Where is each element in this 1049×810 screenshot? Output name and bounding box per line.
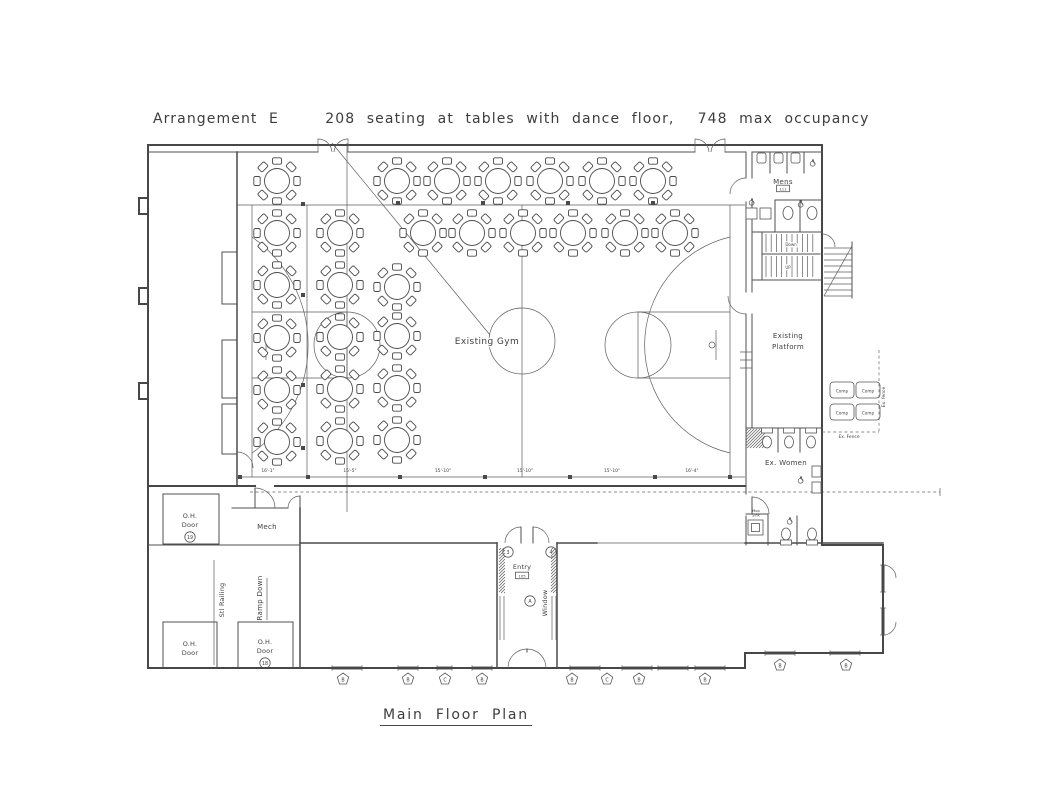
comp-unit-label: Comp (836, 410, 849, 415)
banquet-table (254, 315, 300, 361)
chair (257, 318, 268, 329)
table-circle (435, 169, 460, 194)
chair (503, 242, 514, 253)
chair (406, 161, 417, 172)
hatch-line (551, 568, 557, 574)
chair (286, 347, 297, 358)
table-circle (411, 221, 436, 246)
chair (400, 229, 406, 238)
chair (393, 365, 402, 371)
chair (294, 438, 300, 447)
chair (357, 229, 363, 238)
chair (377, 316, 388, 327)
table-circle (486, 169, 511, 194)
grid-marker (396, 201, 400, 205)
chair (582, 161, 593, 172)
banquet-table (424, 158, 470, 204)
chair (273, 419, 282, 425)
chair (611, 190, 622, 201)
wheelchair-wheel (787, 519, 792, 524)
comp-unit-label: Comp (862, 410, 875, 415)
room-number-text: 111 (779, 187, 787, 192)
hatch-line (499, 556, 505, 562)
chair (257, 190, 268, 201)
chair (349, 317, 360, 328)
table-circle (613, 221, 638, 246)
floor-plan-drawing: 16'-1"15'-5"15'-10"15'-10"15'-10"16'-4" … (0, 0, 1049, 810)
chair (605, 213, 616, 224)
wheelchair-icon (798, 476, 803, 483)
room-number-text: 105 (518, 574, 526, 579)
chair (320, 421, 331, 432)
window-openings (332, 565, 886, 671)
chair (273, 158, 282, 164)
chair (273, 302, 282, 308)
chair (320, 398, 331, 409)
chair (320, 317, 331, 328)
window-tag: B (566, 673, 577, 684)
dimension-tick (398, 475, 402, 479)
label-ex-fence-horizontal: Ex. Fence (838, 434, 859, 440)
chair (621, 210, 630, 216)
chair (374, 177, 380, 186)
door-tag-number: 3 (506, 550, 509, 556)
chair (602, 229, 608, 238)
chair (507, 190, 518, 201)
banquet-table (374, 365, 420, 411)
table-circle (538, 169, 563, 194)
table-circle (265, 326, 290, 351)
chair (530, 161, 541, 172)
chair (468, 250, 477, 256)
chair (377, 420, 388, 431)
chair (684, 242, 695, 253)
chair (336, 406, 345, 412)
window-tag-letter: B (703, 677, 706, 683)
window-tag: B (840, 659, 851, 670)
chair (406, 397, 417, 408)
chair (582, 242, 593, 253)
chair (317, 385, 323, 394)
chair (377, 449, 388, 460)
banquet-table (254, 419, 300, 465)
chair (349, 242, 360, 253)
chair (286, 161, 297, 172)
chair (257, 213, 268, 224)
table-seating-area (254, 158, 698, 465)
chair (655, 213, 666, 224)
chair (286, 265, 297, 276)
banquet-table (254, 210, 300, 256)
stairway (752, 232, 852, 298)
chair (393, 304, 402, 310)
chair (254, 281, 260, 290)
chair (406, 267, 417, 278)
table-circle (590, 169, 615, 194)
hatch-line (499, 565, 505, 571)
chair (294, 386, 300, 395)
chair (569, 250, 578, 256)
table-circle (265, 273, 290, 298)
banquet-table (317, 418, 363, 464)
exterior-walls (139, 145, 883, 668)
hatch-line (551, 571, 557, 577)
table-circle (328, 273, 353, 298)
table-circle (385, 376, 410, 401)
table-circle (641, 169, 666, 194)
banquet-table (527, 158, 573, 204)
hatch-line (551, 562, 557, 568)
chair (393, 353, 402, 359)
chair (605, 242, 616, 253)
dimension-label: 16'-4" (685, 468, 698, 474)
wheelchair-wheel (810, 161, 815, 166)
label-mech: Mech (257, 523, 277, 531)
chair (273, 198, 282, 204)
label-ex-women: Ex. Women (765, 459, 807, 467)
chair (440, 229, 446, 238)
comp-unit: Comp (830, 404, 854, 420)
chair (478, 161, 489, 172)
hatch-line (551, 565, 557, 571)
chair (611, 161, 622, 172)
hatch-line (499, 580, 505, 586)
table-circle (265, 378, 290, 403)
chair (357, 281, 363, 290)
chair (320, 450, 331, 461)
chair (424, 177, 430, 186)
chair (540, 229, 546, 238)
chair (320, 242, 331, 253)
banquet-table (602, 210, 648, 256)
stair-treads (766, 234, 813, 277)
chair (273, 210, 282, 216)
chair (349, 294, 360, 305)
banquet-table (500, 210, 546, 256)
comp-unit: Comp (830, 382, 854, 398)
chair (652, 229, 658, 238)
wheelchair-icon (810, 159, 815, 166)
dimension-label: 15'-10" (517, 468, 533, 474)
table-circle (385, 324, 410, 349)
chair (634, 213, 645, 224)
chair (377, 368, 388, 379)
room-number: 111 (777, 185, 790, 192)
window-tag-letter: B (844, 663, 847, 669)
chair (503, 213, 514, 224)
chair (254, 438, 260, 447)
chair (406, 420, 417, 431)
banquet-table (550, 210, 596, 256)
chair (317, 281, 323, 290)
chair (582, 213, 593, 224)
chair (621, 250, 630, 256)
banquet-table (449, 210, 495, 256)
comp-unit-label: Comp (836, 388, 849, 393)
chair (320, 369, 331, 380)
hatch-line (499, 548, 501, 550)
chair (662, 161, 673, 172)
chair (336, 210, 345, 216)
chair (317, 229, 323, 238)
window-tag-letter: B (778, 663, 781, 669)
hatch-line (499, 574, 505, 580)
chair (598, 198, 607, 204)
label-entry: Entry (513, 563, 531, 571)
plan-caption: Main Floor Plan (380, 707, 532, 726)
label-mop-2: Sink (752, 514, 761, 518)
door-tag: 3 (503, 547, 513, 557)
chair (642, 229, 648, 238)
chair (257, 265, 268, 276)
chair (567, 177, 573, 186)
window-tag: B (337, 673, 348, 684)
banquet-table (254, 262, 300, 308)
chair (414, 436, 420, 445)
dimension-tick (306, 475, 310, 479)
banquet-table (317, 262, 363, 308)
chair (349, 265, 360, 276)
chair (684, 213, 695, 224)
window-tag-letter: B (570, 677, 573, 683)
dimension-tick (568, 475, 572, 479)
chair (414, 332, 420, 341)
chair (452, 213, 463, 224)
table-circle (460, 221, 485, 246)
chair (464, 177, 470, 186)
chair (530, 190, 541, 201)
comp-unit-label: Comp (862, 388, 875, 393)
chair (273, 407, 282, 413)
table-circle (265, 169, 290, 194)
chair (432, 213, 443, 224)
chair (456, 190, 467, 201)
label-oh-door-sw-2: Door (182, 649, 199, 657)
chair (320, 213, 331, 224)
table-circle (561, 221, 586, 246)
accessible-icons (749, 159, 815, 524)
table-circle (328, 221, 353, 246)
chair (406, 190, 417, 201)
banquet-table (374, 158, 420, 204)
chair (414, 283, 420, 292)
chair (443, 198, 452, 204)
door-tag: 18 (260, 658, 270, 668)
chair (414, 384, 420, 393)
door-tags: 191834A (185, 532, 556, 668)
window-tag: B (476, 673, 487, 684)
chair (419, 210, 428, 216)
label-mop-1: Mop (752, 509, 760, 513)
window-tag: B (699, 673, 710, 684)
window-tag-letter: B (637, 677, 640, 683)
hatch-line (504, 592, 505, 593)
hatch-line (499, 586, 505, 592)
chair (553, 242, 564, 253)
chair (273, 262, 282, 268)
platform-room (728, 296, 822, 428)
chair (357, 333, 363, 342)
banquet-table (652, 210, 698, 256)
chair (655, 242, 666, 253)
wheelchair-icon (787, 517, 792, 524)
mens-room (730, 152, 822, 232)
chair (494, 198, 503, 204)
grid-marker (301, 446, 305, 450)
grid-marker (301, 293, 305, 297)
chair (320, 346, 331, 357)
chair (336, 418, 345, 424)
chair (427, 190, 438, 201)
chair (273, 367, 282, 373)
grid-marker (481, 201, 485, 205)
hatch-line (551, 586, 557, 592)
wheelchair-head (812, 159, 814, 161)
chair (393, 405, 402, 411)
chair (254, 334, 260, 343)
chair (478, 190, 489, 201)
chair (294, 229, 300, 238)
chair (519, 210, 528, 216)
chair (403, 213, 414, 224)
chair (546, 158, 555, 164)
chair (662, 190, 673, 201)
hatch-line (499, 571, 505, 577)
chair (468, 210, 477, 216)
chair (317, 437, 323, 446)
banquet-table (374, 313, 420, 359)
hatch-line (551, 577, 557, 583)
basket-rim (709, 342, 715, 348)
chair (414, 177, 420, 186)
label-oh-door-sw-1: O.H. (183, 640, 198, 648)
chair (481, 213, 492, 224)
dimension-label: 16'-1" (261, 468, 274, 474)
window-tag: B (633, 673, 644, 684)
chair (374, 332, 380, 341)
chair (254, 386, 260, 395)
chair (403, 242, 414, 253)
chair (633, 190, 644, 201)
chair (336, 262, 345, 268)
chair (377, 267, 388, 278)
hatched-walls (499, 429, 765, 593)
hatch-line (499, 577, 505, 583)
chair (257, 422, 268, 433)
chair (336, 302, 345, 308)
banquet-table (317, 314, 363, 360)
chair (559, 190, 570, 201)
chair (257, 294, 268, 305)
chair (294, 281, 300, 290)
chair (475, 177, 481, 186)
chair (569, 210, 578, 216)
chair (357, 385, 363, 394)
chair (349, 398, 360, 409)
chair (443, 158, 452, 164)
chair (452, 242, 463, 253)
chair (427, 161, 438, 172)
grid-marker (301, 383, 305, 387)
chair (286, 422, 297, 433)
chair (257, 451, 268, 462)
chair (598, 158, 607, 164)
door-tag: A (525, 596, 535, 606)
chair (559, 161, 570, 172)
door-tag-number: 19 (187, 535, 193, 541)
banquet-table (374, 417, 420, 463)
chair (294, 334, 300, 343)
chair (546, 198, 555, 204)
chair (377, 296, 388, 307)
chair (419, 250, 428, 256)
chair (349, 369, 360, 380)
chair (374, 283, 380, 292)
label-stair-up: UP (785, 265, 791, 270)
dimension-tick (653, 475, 657, 479)
dimension-label: 15'-10" (604, 468, 620, 474)
comp-unit: Comp (856, 382, 880, 398)
chair (257, 347, 268, 358)
label-ramp-down: Ramp Down (256, 575, 264, 620)
chair (634, 242, 645, 253)
banquet-table (254, 158, 300, 204)
chair (649, 158, 658, 164)
window-tag-letter: B (480, 677, 483, 683)
window-tag: C (601, 673, 612, 684)
table-circle (511, 221, 536, 246)
chair (257, 161, 268, 172)
chair (393, 313, 402, 319)
chair (692, 229, 698, 238)
hatch-line (499, 559, 505, 565)
banquet-table (317, 366, 363, 412)
floor-plan-page: Arrangement E 208 seating at tables with… (0, 0, 1049, 810)
hatch-line (551, 574, 557, 580)
table-circle (265, 221, 290, 246)
chair (527, 177, 533, 186)
banquet-table (475, 158, 521, 204)
table-circle (328, 325, 353, 350)
chair (336, 366, 345, 372)
table-circle (385, 275, 410, 300)
chair (273, 355, 282, 361)
wheelchair-icon (798, 200, 803, 207)
table-circle (663, 221, 688, 246)
chair (393, 417, 402, 423)
grid-marker (566, 201, 570, 205)
chair (507, 161, 518, 172)
window-tag-letter: B (406, 677, 409, 683)
banquet-table (374, 264, 420, 310)
chair (500, 229, 506, 238)
hatch-line (551, 583, 557, 589)
chair (320, 265, 331, 276)
comp-unit: Comp (856, 404, 880, 420)
chair (349, 213, 360, 224)
chair (273, 315, 282, 321)
chair (579, 177, 585, 186)
label-window: Window (541, 589, 549, 616)
hatch-line (746, 429, 757, 440)
window-tags: BBCBBCBBBB (337, 659, 851, 684)
chair (550, 229, 556, 238)
banquet-table (630, 158, 676, 204)
table-circle (385, 169, 410, 194)
table-circle (265, 430, 290, 455)
chair (393, 457, 402, 463)
chair (494, 158, 503, 164)
